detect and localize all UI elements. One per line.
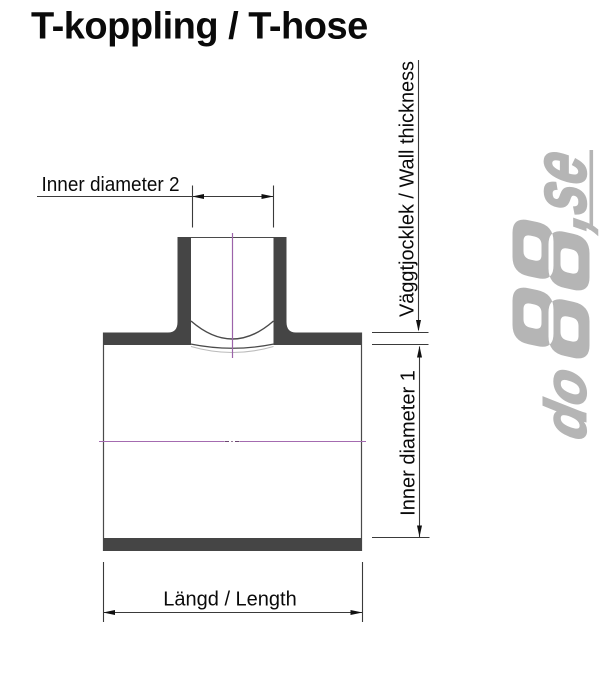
svg-text:T-koppling / T-hose: T-koppling / T-hose: [31, 6, 368, 48]
svg-text:do: do: [534, 362, 598, 444]
svg-text:Längd / Length: Längd / Length: [163, 589, 296, 611]
svg-text:Inner diameter 1: Inner diameter 1: [398, 370, 420, 516]
svg-text:Inner diameter 2: Inner diameter 2: [42, 174, 180, 196]
svg-text:Väggtjocklek / Wall thickness: Väggtjocklek / Wall thickness: [397, 61, 419, 317]
